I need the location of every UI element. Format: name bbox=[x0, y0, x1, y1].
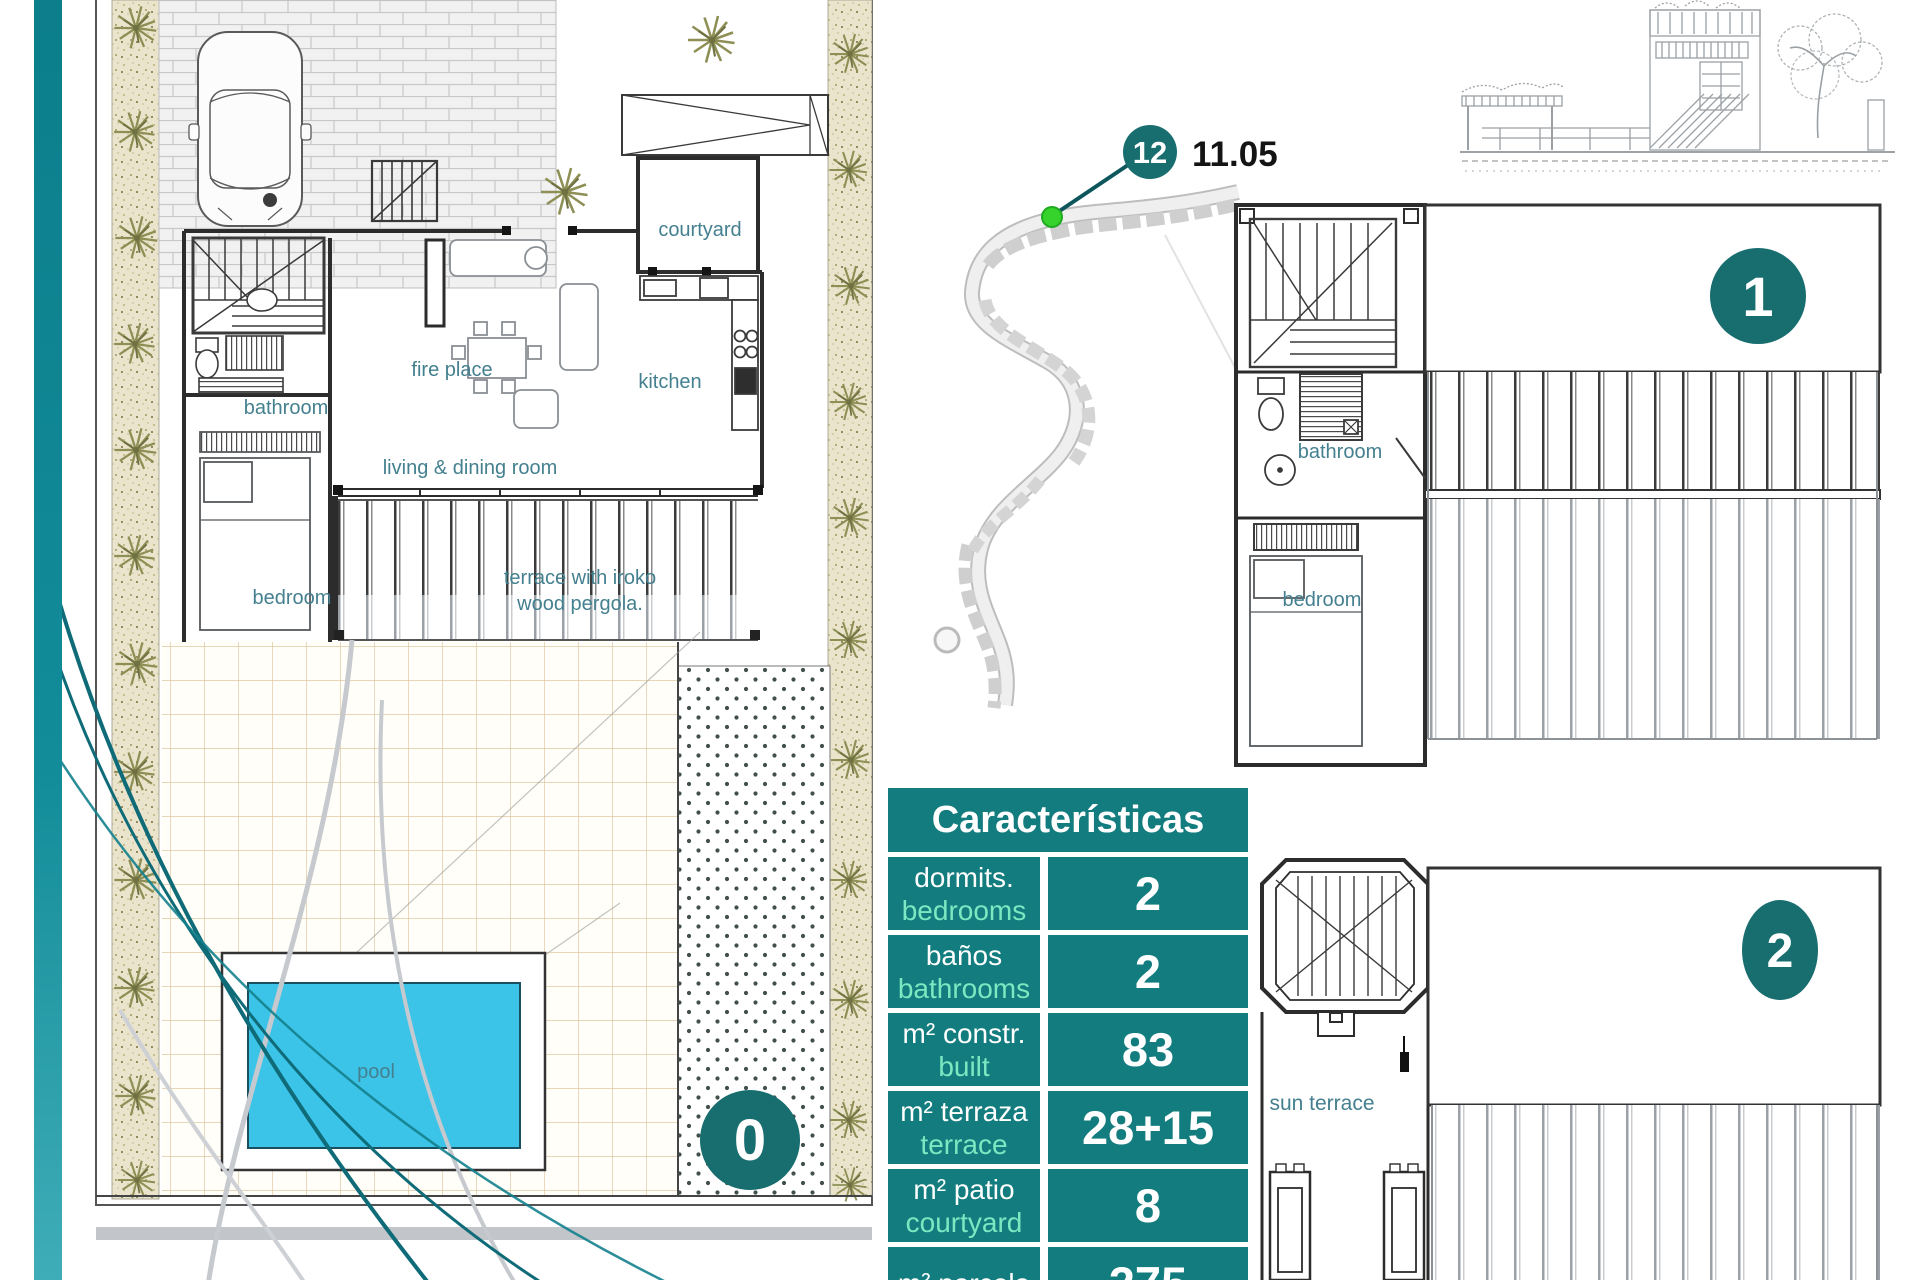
row-label-en: bedrooms bbox=[902, 894, 1027, 927]
bathroom-label: bathroom bbox=[244, 397, 329, 419]
plot-location-dot bbox=[1042, 207, 1062, 227]
bedroom-label: bedroom bbox=[1283, 589, 1362, 611]
row-label-es: baños bbox=[926, 939, 1002, 972]
row-label-es: m² patio bbox=[913, 1173, 1014, 1206]
planting-strip-right bbox=[828, 0, 872, 1202]
roof-plan: sun terrace 2 bbox=[1262, 860, 1880, 1280]
street bbox=[972, 192, 1238, 705]
level-2-badge: 2 bbox=[1742, 900, 1818, 1000]
bed bbox=[1250, 556, 1362, 746]
row-label-es: m² constr. bbox=[903, 1017, 1026, 1050]
site-map: 12 11.05 bbox=[935, 125, 1278, 708]
row-value: 2 bbox=[1048, 935, 1248, 1008]
row-value: 275 bbox=[1048, 1247, 1248, 1280]
row-label-es: m² terraza bbox=[900, 1095, 1028, 1128]
level-1-number: 1 bbox=[1742, 265, 1773, 328]
row-value: 2 bbox=[1048, 857, 1248, 930]
row-label-es: m² parcela bbox=[898, 1267, 1030, 1280]
kitchen-label: kitchen bbox=[638, 371, 701, 393]
table-row: m² patiocourtyard 8 bbox=[888, 1169, 1248, 1242]
ground-floor-plan: courtyard bbox=[96, 0, 872, 1240]
washbasin-icon bbox=[247, 289, 277, 311]
roundabout bbox=[935, 628, 959, 652]
level-0-number: 0 bbox=[734, 1108, 766, 1173]
row-label-en: built bbox=[938, 1050, 989, 1083]
roof-area bbox=[1428, 868, 1880, 1105]
planting-strip-left bbox=[112, 0, 159, 1199]
bathroom-fixtures bbox=[196, 336, 283, 393]
elevation-sketch bbox=[1460, 1, 1895, 171]
wardrobe bbox=[1254, 524, 1358, 550]
row-value: 83 bbox=[1048, 1013, 1248, 1086]
features-table: Características dormits.bedrooms 2 baños… bbox=[888, 788, 1248, 1280]
table-row: bañosbathrooms 2 bbox=[888, 935, 1248, 1008]
planters bbox=[1270, 1164, 1424, 1280]
row-label-en: terrace bbox=[920, 1128, 1007, 1161]
fireplace-icon bbox=[426, 240, 444, 326]
level-0-badge: 0 bbox=[700, 1090, 800, 1190]
features-table-header: Características bbox=[888, 788, 1248, 852]
table-row: m² parcela 275 bbox=[888, 1247, 1248, 1280]
pergola-slats bbox=[1425, 372, 1880, 739]
sun-terrace-label: sun terrace bbox=[1269, 1092, 1374, 1115]
living-dining-label: living & dining room bbox=[383, 457, 558, 479]
bedroom-label: bedroom bbox=[253, 587, 332, 609]
plot-marker-badge: 12 bbox=[1123, 125, 1177, 179]
table-row: m² terrazaterrace 28+15 bbox=[888, 1091, 1248, 1164]
car-icon bbox=[189, 32, 311, 226]
row-label-en: courtyard bbox=[906, 1206, 1023, 1239]
table-row: m² constr.built 83 bbox=[888, 1013, 1248, 1086]
chimney bbox=[1318, 1012, 1354, 1036]
row-value: 8 bbox=[1048, 1169, 1248, 1242]
level-1-badge: 1 bbox=[1710, 248, 1806, 344]
courtyard-label: courtyard bbox=[658, 219, 741, 241]
level-2-number: 2 bbox=[1767, 925, 1794, 978]
elevation-value-label: 11.05 bbox=[1192, 135, 1278, 174]
terrace-label-line1: terrace with iroko bbox=[504, 567, 656, 589]
table-row: dormits.bedrooms 2 bbox=[888, 857, 1248, 930]
roof-area bbox=[1425, 205, 1880, 372]
pergola-slats bbox=[1432, 1105, 1880, 1280]
brochure-page: courtyard bbox=[0, 0, 1920, 1280]
row-label-es: dormits. bbox=[914, 861, 1014, 894]
row-label-en: bathrooms bbox=[898, 972, 1030, 1005]
courtyard-room: courtyard bbox=[638, 158, 758, 272]
teal-sidebar bbox=[34, 0, 62, 1280]
row-value: 28+15 bbox=[1048, 1091, 1248, 1164]
plot-marker-number: 12 bbox=[1133, 135, 1167, 170]
fireplace-label: fire place bbox=[411, 359, 492, 381]
bathroom-label: bathroom bbox=[1298, 441, 1383, 463]
terrace-label-line2: wood pergola. bbox=[516, 593, 643, 615]
first-floor-plan: bathroom bedroom 1 bbox=[1236, 205, 1880, 765]
pool-label: pool bbox=[357, 1061, 395, 1083]
